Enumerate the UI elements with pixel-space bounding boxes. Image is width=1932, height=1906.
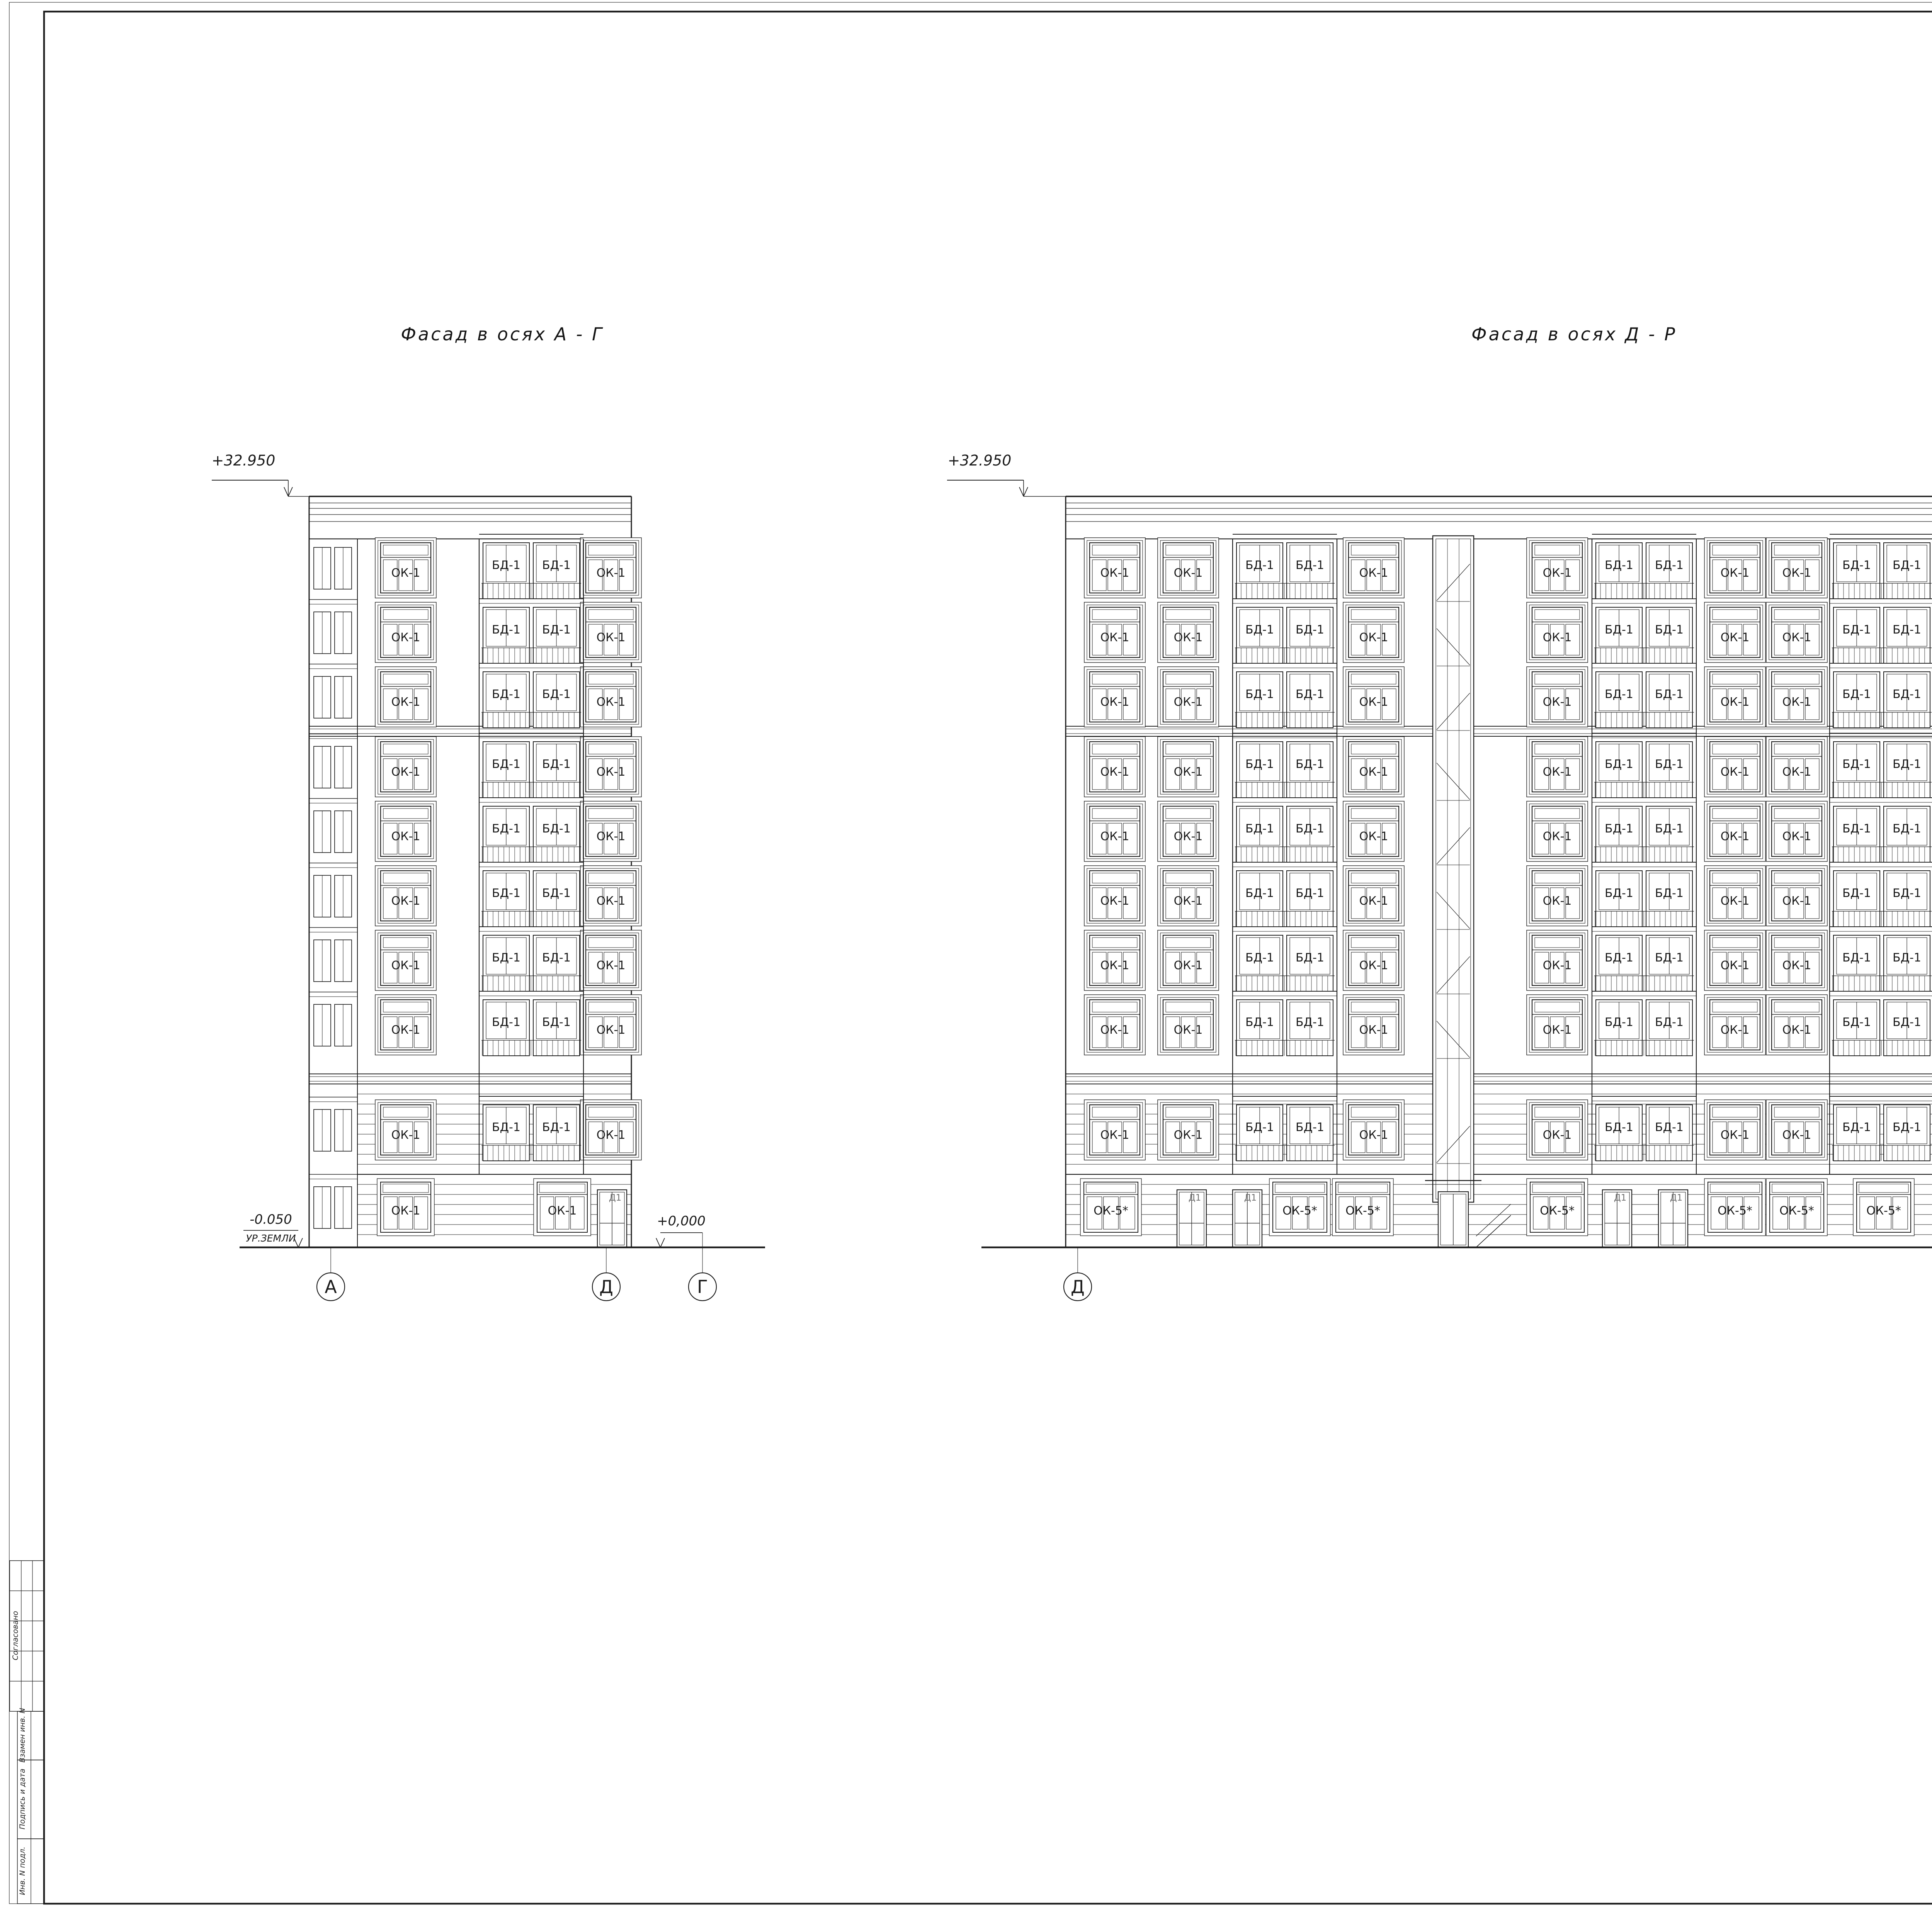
window-label: БД-1: [1296, 1121, 1324, 1134]
window-label: БД-1: [1842, 559, 1871, 572]
window-label: ОК-1: [1543, 1023, 1572, 1037]
window-label: ОК-1: [1359, 1023, 1388, 1037]
window-label: БД-1: [542, 822, 571, 836]
window-label: ОК-1: [1782, 765, 1811, 779]
window-label: ОК-1: [1100, 631, 1129, 644]
window-label: ОК-1: [1543, 566, 1572, 580]
window-label: ОК-1: [597, 894, 626, 908]
window-label: БД-1: [1655, 688, 1684, 701]
window-label: БД-1: [492, 758, 520, 771]
window-label: БД-1: [1245, 758, 1274, 771]
window-label: ОК-5*: [1718, 1204, 1752, 1218]
window-label: ОК-1: [391, 765, 420, 779]
window-label: БД-1: [542, 951, 571, 965]
window-label: БД-1: [1296, 758, 1324, 771]
window-label: БД-1: [1842, 623, 1871, 637]
window-label: ОК-1: [1721, 1128, 1750, 1142]
window-label: БД-1: [1842, 1016, 1871, 1029]
window-label: БД-1: [1842, 951, 1871, 965]
window-label: ОК-1: [1359, 695, 1388, 709]
window-label: ОК-1: [597, 830, 626, 843]
window-label: ОК-5*: [1094, 1204, 1128, 1218]
window-label: ОК-5*: [1540, 1204, 1575, 1218]
elevation-mark: +32.950: [948, 452, 1012, 469]
window-label: ОК-1: [1721, 894, 1750, 908]
window-label: ОК-1: [391, 1128, 420, 1142]
window-label: ОК-1: [1174, 1023, 1203, 1037]
window-label: БД-1: [1245, 623, 1274, 637]
window-label: ОК-1: [548, 1204, 577, 1218]
window-label: БД-1: [1842, 688, 1871, 701]
window-label: БД-1: [1605, 1016, 1633, 1029]
facade-left-drawing: ОК-1ОК-1ОК-1ОК-1ОК-1ОК-1ОК-1ОК-1ОК-1ОК-1…: [212, 452, 765, 1301]
window-label: БД-1: [1893, 951, 1921, 965]
window-label: ОК-1: [1782, 1128, 1811, 1142]
window-label: ОК-1: [1782, 566, 1811, 580]
window-label: ОК-1: [1721, 830, 1750, 843]
window-label: ОК-1: [1100, 830, 1129, 843]
window-label: БД-1: [1605, 559, 1633, 572]
margin-label-sign-date: Подпись и дата: [18, 1760, 27, 1838]
window-label: ОК-1: [1100, 894, 1129, 908]
window-label: ОК-1: [1543, 765, 1572, 779]
window-label: БД-1: [492, 623, 520, 637]
window-label: БД-1: [492, 688, 520, 701]
window-label: ОК-1: [1721, 765, 1750, 779]
window-label: БД-1: [1655, 887, 1684, 900]
window-label: ОК-1: [1100, 959, 1129, 972]
window-label: ОК-1: [1721, 695, 1750, 709]
window-label: БД-1: [1655, 1016, 1684, 1029]
axis-letter: Д: [599, 1276, 613, 1297]
window-label: БД-1: [542, 887, 571, 900]
window-label: ОК-5*: [1282, 1204, 1317, 1218]
window-label: БД-1: [1245, 1016, 1274, 1029]
window-label: ОК-1: [1174, 631, 1203, 644]
window-label: БД-1: [1245, 559, 1274, 572]
window-label: БД-1: [542, 1016, 571, 1029]
window-label: ОК-1: [1782, 1023, 1811, 1037]
window-label: БД-1: [1893, 887, 1921, 900]
window-label: БД-1: [542, 623, 571, 637]
window-label: БД-1: [1655, 1121, 1684, 1134]
window-label: БД-1: [492, 1121, 520, 1134]
window-label: ОК-1: [1543, 631, 1572, 644]
window-label: ОК-1: [1721, 566, 1750, 580]
window-label: БД-1: [492, 1016, 520, 1029]
window-label: БД-1: [542, 688, 571, 701]
door-label: Д1: [1614, 1193, 1627, 1203]
margin-label-agreed: Согласовано: [11, 1597, 20, 1674]
sheet-frame: [9, 2, 1932, 1904]
window-label: ОК-1: [1782, 695, 1811, 709]
window-label: ОК-1: [1174, 959, 1203, 972]
window-label: БД-1: [492, 951, 520, 965]
elevation-mark: +0,000: [657, 1213, 706, 1229]
window-label: БД-1: [1245, 951, 1274, 965]
window-label: ОК-1: [1782, 894, 1811, 908]
window-label: БД-1: [1296, 822, 1324, 836]
window-label: ОК-1: [1100, 1023, 1129, 1037]
window-label: БД-1: [1842, 822, 1871, 836]
window-label: ОК-1: [1721, 1023, 1750, 1037]
window-label: БД-1: [1842, 758, 1871, 771]
door-label: Д1: [1189, 1193, 1201, 1203]
window-label: БД-1: [1655, 559, 1684, 572]
window-label: ОК-1: [1100, 566, 1129, 580]
window-label: БД-1: [1893, 559, 1921, 572]
window-label: ОК-1: [597, 566, 626, 580]
window-label: ОК-1: [1721, 959, 1750, 972]
window-label: ОК-1: [1359, 566, 1388, 580]
window-label: БД-1: [1893, 758, 1921, 771]
window-label: ОК-1: [391, 1204, 420, 1218]
window-label: БД-1: [492, 559, 520, 572]
window-label: БД-1: [1655, 822, 1684, 836]
window-label: БД-1: [492, 887, 520, 900]
axis-letter: А: [325, 1276, 337, 1297]
window-label: БД-1: [1605, 951, 1633, 965]
window-label: БД-1: [1893, 1121, 1921, 1134]
window-label: БД-1: [1245, 688, 1274, 701]
window-label: БД-1: [542, 559, 571, 572]
window-label: ОК-1: [1543, 1128, 1572, 1142]
window-label: ОК-1: [1782, 830, 1811, 843]
window-label: ОК-1: [1359, 765, 1388, 779]
window-label: БД-1: [1893, 623, 1921, 637]
window-label: ОК-1: [597, 695, 626, 709]
window-label: ОК-1: [1174, 894, 1203, 908]
window-label: ОК-1: [597, 765, 626, 779]
window-label: БД-1: [1296, 1016, 1324, 1029]
window-label: БД-1: [1655, 758, 1684, 771]
window-label: БД-1: [1605, 822, 1633, 836]
window-label: БД-1: [1605, 688, 1633, 701]
window-label: ОК-1: [1543, 830, 1572, 843]
window-label: БД-1: [1605, 887, 1633, 900]
window-label: ОК-1: [1174, 830, 1203, 843]
window-label: ОК-1: [1543, 894, 1572, 908]
window-label: ОК-5*: [1345, 1204, 1380, 1218]
window-label: ОК-1: [1359, 631, 1388, 644]
window-label: БД-1: [1893, 822, 1921, 836]
window-label: ОК-1: [1359, 1128, 1388, 1142]
window-label: ОК-1: [597, 631, 626, 644]
window-label: БД-1: [1655, 951, 1684, 965]
window-label: БД-1: [1605, 758, 1633, 771]
window-label: БД-1: [1296, 623, 1324, 637]
sheet-drawing: ОК-1ОК-1ОК-1ОК-1ОК-1ОК-1ОК-1ОК-1ОК-1ОК-1…: [0, 0, 1932, 1906]
window-label: ОК-5*: [1866, 1204, 1901, 1218]
window-label: БД-1: [1842, 887, 1871, 900]
window-label: БД-1: [1842, 1121, 1871, 1134]
window-label: ОК-1: [1174, 566, 1203, 580]
window-label: ОК-1: [1359, 894, 1388, 908]
elevation-mark: +32.950: [212, 452, 276, 469]
window-label: ОК-1: [1721, 631, 1750, 644]
window-label: ОК-1: [1100, 765, 1129, 779]
window-label: БД-1: [1893, 688, 1921, 701]
window-label: БД-1: [492, 822, 520, 836]
window-label: ОК-1: [391, 566, 420, 580]
window-label: ОК-1: [391, 631, 420, 644]
margin-label-inv-original: Инв. N подл.: [18, 1832, 27, 1906]
facade-right-title: Фасад в осях Д - Р: [1420, 324, 1729, 345]
facade-right-drawing: ОК-1ОК-1ОК-1ОК-1ОК-1ОК-1ОК-1ОК-1ОК-1ОК-1…: [947, 452, 1932, 1301]
window-label: ОК-1: [1100, 1128, 1129, 1142]
door-label: Д1: [609, 1193, 622, 1203]
window-label: ОК-1: [1174, 1128, 1203, 1142]
window-label: БД-1: [1245, 887, 1274, 900]
window-label: ОК-1: [1782, 631, 1811, 644]
window-label: ОК-5*: [1779, 1204, 1814, 1218]
facade-left-title: Фасад в осях А - Г: [348, 324, 657, 345]
window-label: ОК-1: [391, 830, 420, 843]
window-label: ОК-1: [1782, 959, 1811, 972]
window-label: ОК-1: [597, 1128, 626, 1142]
window-label: БД-1: [1893, 1016, 1921, 1029]
window-label: ОК-1: [1359, 959, 1388, 972]
door-label: Д1: [1244, 1193, 1257, 1203]
window-label: ОК-1: [597, 959, 626, 972]
window-label: БД-1: [1296, 559, 1324, 572]
axis-letter: Д: [1071, 1276, 1085, 1297]
window-label: ОК-1: [391, 1023, 420, 1037]
window-label: ОК-1: [1174, 765, 1203, 779]
window-label: ОК-1: [1543, 695, 1572, 709]
axis-letter: Г: [697, 1276, 708, 1297]
window-label: БД-1: [1245, 822, 1274, 836]
window-label: БД-1: [1296, 688, 1324, 701]
window-label: ОК-1: [597, 1023, 626, 1037]
window-label: БД-1: [1655, 623, 1684, 637]
window-label: БД-1: [1296, 887, 1324, 900]
elevation-mark: -0.050: [250, 1212, 292, 1227]
window-label: БД-1: [542, 758, 571, 771]
window-label: БД-1: [1296, 951, 1324, 965]
window-label: ОК-1: [391, 894, 420, 908]
window-label: БД-1: [1605, 623, 1633, 637]
door-label: Д1: [1670, 1193, 1683, 1203]
window-label: БД-1: [542, 1121, 571, 1134]
drawing-sheet: ОК-1ОК-1ОК-1ОК-1ОК-1ОК-1ОК-1ОК-1ОК-1ОК-1…: [0, 0, 1932, 1906]
window-label: БД-1: [1605, 1121, 1633, 1134]
window-label: ОК-1: [391, 695, 420, 709]
window-label: ОК-1: [1100, 695, 1129, 709]
window-label: ОК-1: [1359, 830, 1388, 843]
window-label: БД-1: [1245, 1121, 1274, 1134]
window-label: ОК-1: [1174, 695, 1203, 709]
window-label: ОК-1: [1543, 959, 1572, 972]
window-label: ОК-1: [391, 959, 420, 972]
ground-level-label: УР.ЗЕМЛИ: [246, 1233, 296, 1244]
